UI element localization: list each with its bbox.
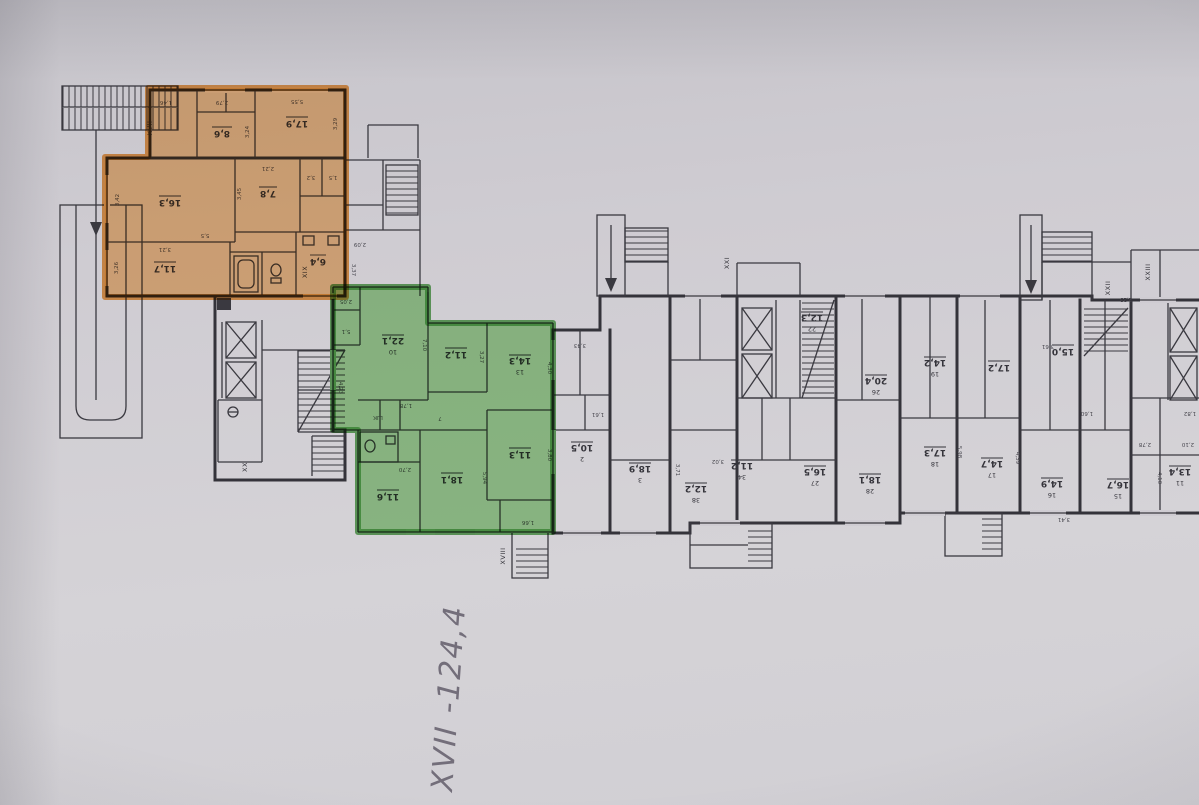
room-number-label: 15 [1114, 492, 1122, 500]
floor-plan-photo: 8,6 3,24 2,79 1,46 17,9 5,55 3,29 16,3 3… [0, 0, 1199, 805]
dimension-label: 3,61 [1042, 343, 1054, 349]
room-number-label: 11 [1176, 479, 1184, 487]
dimension-label: 1,61 [592, 411, 604, 417]
room-number-label: 34 [738, 473, 746, 481]
dimension-label: 4,10 [1156, 472, 1162, 485]
dimension-label: 2,78 [1138, 441, 1151, 447]
room-area-label: 12,3 [801, 312, 823, 322]
room-area-label: 15,0 [1052, 346, 1074, 356]
dimension-label: 3,02 [712, 458, 724, 464]
dimension-label: 2,09 [353, 241, 366, 247]
green-apartment-highlight [333, 287, 553, 532]
dimension-label: 4,39 [1014, 452, 1020, 465]
room-area-label: 16,7 [1107, 479, 1129, 489]
room-number-label: 2 [580, 455, 584, 463]
arrow-down-icon [90, 222, 102, 236]
room-area-label: 17,2 [988, 362, 1010, 372]
section-label-xxiii: XXIII [1144, 263, 1152, 280]
room-area-label: 13,4 [1169, 466, 1191, 476]
room-area-label: 11,2 [731, 460, 753, 470]
dimension-label: 3,71 [674, 464, 680, 476]
entrance-canopy-right [1020, 215, 1092, 300]
room-area-label: 12,2 [685, 483, 707, 493]
room-number-label: 19 [931, 370, 939, 378]
room-number-label: 28 [866, 487, 874, 495]
dimension-label: 1,60 [1080, 410, 1093, 416]
room-area-label: 18,1 [859, 474, 881, 484]
dimension-label: 2,10 [1181, 441, 1194, 447]
dimension-label: 5,98 [956, 446, 962, 459]
dimension-label: 2,23 [1119, 296, 1132, 302]
entry-steps-hatch [386, 165, 418, 215]
entrance-canopy-left [597, 215, 668, 296]
dimension-label: 3,37 [350, 264, 356, 277]
room-area-label: 14,7 [981, 458, 1003, 468]
room-area-label: 20,4 [865, 375, 887, 385]
room-area-label: 16,5 [804, 466, 826, 476]
room-area-label: 14,9 [1041, 478, 1063, 488]
room-area-label: 14,2 [924, 357, 946, 367]
dimension-label: 1,82 [1184, 410, 1196, 416]
dimension-label: 3,41 [1058, 516, 1070, 522]
room-number-label: 22 [808, 325, 816, 333]
section-label-xviii: XVIII [499, 547, 507, 564]
room-number-label: 38 [692, 496, 700, 504]
section-label-xxi: XXI [723, 257, 731, 269]
room-number-label: 3 [638, 476, 642, 484]
room-number-label: 17 [988, 471, 996, 479]
room-number-label: 16 [1048, 491, 1056, 499]
room-area-label: 17,3 [924, 447, 946, 457]
room-number-label: 27 [811, 479, 819, 487]
room-area-label: 18,9 [629, 463, 651, 473]
room-number-label: 18 [931, 460, 939, 468]
room-number-label: 26 [872, 388, 880, 396]
section-label-xx: XX [241, 462, 249, 472]
floor-plan-drawing: 8,6 3,24 2,79 1,46 17,9 5,55 3,29 16,3 3… [0, 0, 1199, 805]
section-label-xxii: XXII [1104, 281, 1112, 296]
porch-steps [512, 513, 1002, 578]
room-area-label: 10,5 [571, 442, 593, 452]
dimension-label: 3,43 [573, 342, 586, 348]
handwritten-annotation: XVII -124,4 [425, 604, 473, 795]
